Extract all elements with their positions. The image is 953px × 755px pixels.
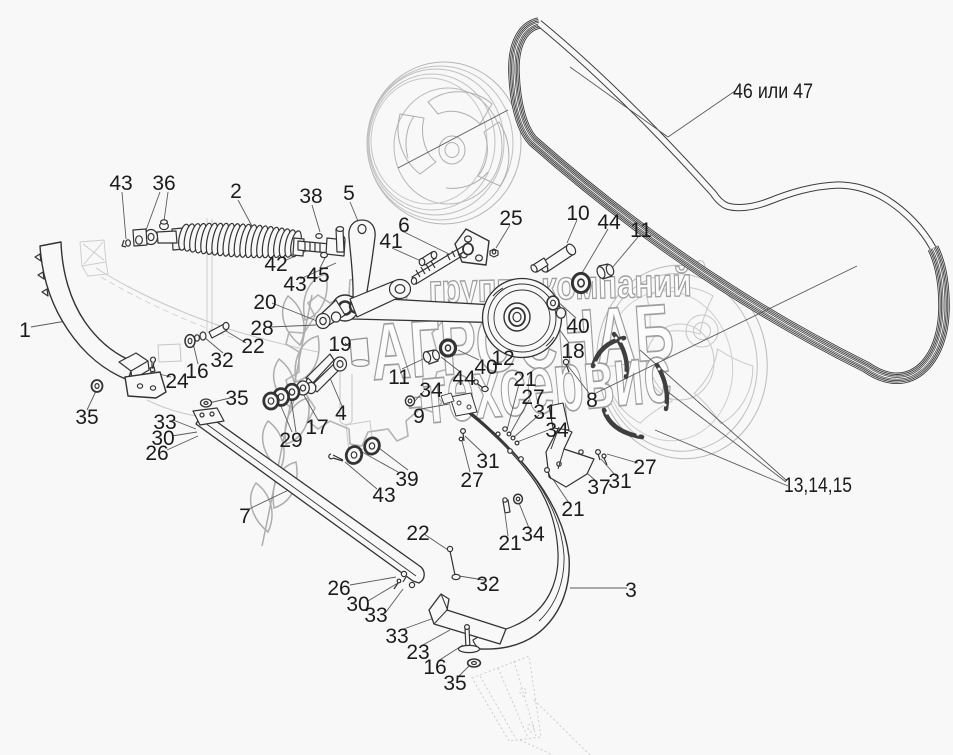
svg-text:19: 19 [328, 333, 351, 356]
svg-text:13,14,15: 13,14,15 [784, 474, 852, 497]
svg-text:36: 36 [152, 172, 175, 195]
svg-text:27: 27 [460, 469, 483, 492]
svg-text:20: 20 [253, 291, 276, 314]
svg-text:37: 37 [587, 476, 610, 499]
svg-text:43: 43 [109, 172, 132, 195]
svg-text:43: 43 [372, 484, 395, 507]
svg-text:39: 39 [395, 468, 418, 491]
svg-text:33: 33 [364, 604, 387, 627]
svg-text:32: 32 [476, 573, 499, 596]
svg-text:40: 40 [474, 356, 497, 379]
svg-text:10: 10 [566, 202, 589, 225]
svg-text:34: 34 [521, 523, 545, 546]
svg-text:44: 44 [452, 367, 476, 390]
svg-text:41: 41 [379, 230, 402, 253]
svg-text:16: 16 [185, 360, 208, 383]
svg-text:35: 35 [443, 672, 466, 695]
svg-text:43: 43 [283, 273, 306, 296]
svg-text:21: 21 [561, 498, 584, 521]
svg-text:22: 22 [406, 522, 429, 545]
svg-text:34: 34 [545, 419, 569, 442]
svg-text:9: 9 [413, 405, 425, 428]
svg-text:32: 32 [210, 349, 233, 372]
svg-text:5: 5 [343, 182, 355, 205]
svg-text:25: 25 [499, 207, 522, 230]
svg-text:31: 31 [608, 470, 631, 493]
svg-text:8: 8 [586, 389, 598, 412]
svg-text:46 или 47: 46 или 47 [733, 80, 813, 103]
svg-text:17: 17 [305, 416, 328, 439]
svg-text:2: 2 [230, 180, 242, 203]
svg-text:38: 38 [299, 185, 322, 208]
svg-text:33: 33 [385, 625, 408, 648]
svg-text:27: 27 [633, 456, 656, 479]
svg-text:1: 1 [19, 319, 31, 342]
svg-text:21: 21 [498, 532, 521, 555]
svg-text:35: 35 [225, 387, 248, 410]
svg-text:26: 26 [145, 442, 168, 465]
svg-text:44: 44 [597, 211, 621, 234]
svg-text:29: 29 [279, 429, 302, 452]
svg-text:7: 7 [239, 505, 251, 528]
svg-text:35: 35 [75, 406, 98, 429]
svg-text:40: 40 [566, 315, 589, 338]
svg-text:4: 4 [335, 402, 347, 425]
svg-text:11: 11 [630, 219, 652, 242]
svg-text:3: 3 [625, 579, 637, 602]
svg-text:45: 45 [306, 264, 329, 287]
svg-text:22: 22 [241, 335, 264, 358]
svg-text:11: 11 [388, 366, 410, 389]
svg-text:34: 34 [419, 379, 443, 402]
svg-text:18: 18 [561, 340, 584, 363]
svg-text:24: 24 [165, 370, 189, 393]
